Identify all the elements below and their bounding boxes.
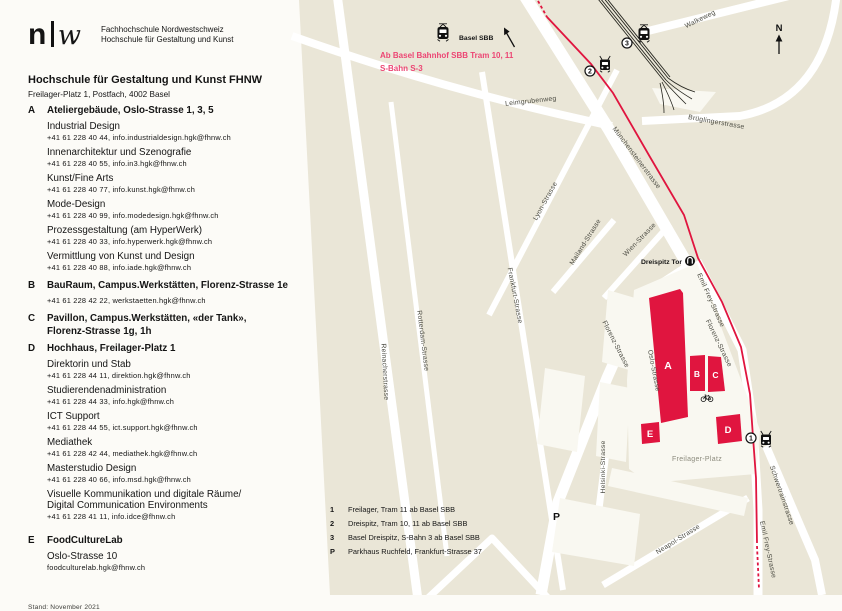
svg-text:Freilager, Tram 11 ab Basel SB: Freilager, Tram 11 ab Basel SBB <box>348 505 455 514</box>
entry-contact: +41 61 228 44 55, ict.support.hgk@fhnw.c… <box>47 423 328 433</box>
section-title: BauRaum, Campus.Werkstätten, Florenz-Str… <box>47 280 288 291</box>
entry-name: Masterstudio Design <box>47 463 328 474</box>
section-title-line2: Florenz-Strasse 1g, 1h <box>47 326 328 339</box>
building-e-label: E <box>647 429 653 440</box>
section-letter: E <box>28 535 35 547</box>
directory-section-b: BBauRaum, Campus.Werkstätten, Florenz-St… <box>28 280 328 306</box>
directory-entry: Studierendenadministration +41 61 228 44… <box>28 385 328 407</box>
building-d-label: D <box>725 425 732 436</box>
directory-entry: Oslo-Strasse 10 foodculturelab.hgk@fhnw.… <box>28 551 328 573</box>
fhnw-logo: nw <box>28 20 81 55</box>
section-title: Hochhaus, Freilager-Platz 1 <box>47 343 175 354</box>
directory-entry: Mediathek +41 61 228 42 44, mediathek.hg… <box>28 437 328 459</box>
station-label: Basel SBB <box>459 35 493 42</box>
entry-contact: +41 61 228 40 77, info.kunst.hgk@fhnw.ch <box>47 185 328 195</box>
svg-text:Parkhaus Ruchfeld, Frankfurt-S: Parkhaus Ruchfeld, Frankfurt-Strasse 37 <box>348 547 482 556</box>
directory-section-e: EFoodCultureLab Oslo-Strasse 10 foodcult… <box>28 535 328 611</box>
entry-contact: +41 61 228 40 66, info.msd.hgk@fhnw.ch <box>47 475 328 485</box>
entry-contact: +41 61 228 40 55, info.in3.hgk@fhnw.ch <box>47 159 328 169</box>
bike-building <box>691 391 724 406</box>
dreispitz-tor-label: Dreispitz Tor <box>641 259 682 266</box>
stop-badge-3: 3 <box>622 38 632 48</box>
section-letter: D <box>28 343 35 355</box>
entry-contact: +41 61 228 44 11, direktion.hgk@fhnw.ch <box>47 371 328 381</box>
entry-name: Kunst/Fine Arts <box>47 173 328 184</box>
entry-name-line2: Digital Communication Environments <box>47 500 328 511</box>
entry-contact: +41 61 228 40 99, info.modedesign.hgk@fh… <box>47 211 328 221</box>
page-title: Hochschule für Gestaltung und Kunst FHNW <box>28 74 328 87</box>
directory-entry: Vermittlung von Kunst und Design +41 61 … <box>28 251 328 273</box>
svg-text:Dreispitz, Tram 10, 11 ab Base: Dreispitz, Tram 10, 11 ab Basel SBB <box>348 519 467 528</box>
directory-entry: ICT Support +41 61 228 44 55, ict.suppor… <box>28 411 328 433</box>
section-title: FoodCultureLab <box>47 535 123 546</box>
entry-contact: +41 61 228 41 11, info.idce@fhnw.ch <box>47 512 328 522</box>
directory-entry: Visuelle Kommunikation und digitale Räum… <box>28 489 328 522</box>
entry-name: Industrial Design <box>47 121 328 132</box>
svg-text:Basel Dreispitz, S-Bahn 3 ab B: Basel Dreispitz, S-Bahn 3 ab Basel SBB <box>348 533 480 542</box>
org-line1: Fachhochschule Nordwestschweiz <box>101 25 234 35</box>
svg-text:P: P <box>330 547 335 556</box>
entry-contact: +41 61 228 44 33, info.hgk@fhnw.ch <box>47 397 328 407</box>
block-frankfurt <box>537 368 585 452</box>
svg-text:2: 2 <box>330 519 334 528</box>
page-address: Freilager-Platz 1, Postfach, 4002 Basel <box>28 90 328 100</box>
route-note-line2: S-Bahn S-3 <box>380 64 423 73</box>
svg-text:3: 3 <box>625 41 629 48</box>
directory-section-d: DHochhaus, Freilager-Platz 1 Direktorin … <box>28 343 328 522</box>
directory-entry: Mode-Design +41 61 228 40 99, info.moded… <box>28 199 328 221</box>
svg-text:1: 1 <box>749 436 753 443</box>
north-label: N <box>776 23 783 34</box>
parking-marker: P <box>553 511 560 523</box>
entry-name: Visuelle Kommunikation und digitale Räum… <box>47 489 328 500</box>
entry-contact: +41 61 228 40 88, info.iade.hgk@fhnw.ch <box>47 263 328 273</box>
street-label-freilager-platz: Freilager-Platz <box>672 456 722 463</box>
svg-text:1: 1 <box>330 505 334 514</box>
entry-contact: +41 61 228 40 33, info.hyperwerk.hgk@fhn… <box>47 237 328 247</box>
entry-name: Mode-Design <box>47 199 328 210</box>
entry-name: Prozessgestaltung (am HyperWerk) <box>47 225 328 236</box>
section-letter: A <box>28 105 35 117</box>
org-line2: Hochschule für Gestaltung und Kunst <box>101 35 234 45</box>
logo-divider <box>51 21 54 47</box>
route-note-line1: Ab Basel Bahnhof SBB Tram 10, 11 <box>380 51 514 60</box>
directory-entry: +41 61 228 42 22, werkstaetten.hgk@fhnw.… <box>28 296 328 306</box>
directory-entry: Kunst/Fine Arts +41 61 228 40 77, info.k… <box>28 173 328 195</box>
section-letter: B <box>28 280 35 292</box>
building-a-label: A <box>664 360 672 372</box>
entry-contact: foodculturelab.hgk@fhnw.ch <box>47 563 328 573</box>
directory-section-c: CPavillon, Campus.Werkstätten, «der Tank… <box>28 313 328 338</box>
entry-contact: +41 61 228 42 44, mediathek.hgk@fhnw.ch <box>47 449 328 459</box>
gate-icon <box>685 256 695 266</box>
stop-badge-2: 2 <box>585 66 595 76</box>
entry-name: ICT Support <box>47 411 328 422</box>
building-b-label: B <box>694 369 700 379</box>
directory-entry: Prozessgestaltung (am HyperWerk) +41 61 … <box>28 225 328 247</box>
version-note: Stand: November 2021 <box>28 604 328 611</box>
svg-text:3: 3 <box>330 533 334 542</box>
directory-entry: Direktorin und Stab +41 61 228 44 11, di… <box>28 359 328 381</box>
directory-entry: Masterstudio Design +41 61 228 40 66, in… <box>28 463 328 485</box>
directory-panel: nw Fachhochschule Nordwestschweiz Hochsc… <box>28 20 328 611</box>
entry-name: Studierendenadministration <box>47 385 328 396</box>
entry-name: Innenarchitektur und Szenografie <box>47 147 328 158</box>
section-title-line1: Pavillon, Campus.Werkstätten, «der Tank»… <box>47 313 246 324</box>
directory-entry: Industrial Design +41 61 228 40 44, info… <box>28 121 328 143</box>
stop-badge-1: 1 <box>746 433 756 443</box>
street-label-helsinki-strasse: Helsinki-Strasse <box>600 440 607 493</box>
entry-name: Mediathek <box>47 437 328 448</box>
section-title: Ateliergebäude, Oslo-Strasse 1, 3, 5 <box>47 105 214 116</box>
section-letter: C <box>28 313 35 326</box>
svg-text:2: 2 <box>588 69 592 76</box>
logo-w: w <box>58 20 81 51</box>
entry-address: Oslo-Strasse 10 <box>47 551 328 562</box>
entry-name: Vermittlung von Kunst und Design <box>47 251 328 262</box>
directory-entry: Innenarchitektur und Szenografie +41 61 … <box>28 147 328 169</box>
directory-section-a: AAteliergebäude, Oslo-Strasse 1, 3, 5 In… <box>28 105 328 273</box>
entry-name: Direktorin und Stab <box>47 359 328 370</box>
entry-contact: +41 61 228 42 22, werkstaetten.hgk@fhnw.… <box>47 296 328 306</box>
logo-n: n <box>28 18 46 51</box>
building-c-label: C <box>712 370 718 380</box>
entry-contact: +41 61 228 40 44, info.industrialdesign.… <box>47 133 328 143</box>
